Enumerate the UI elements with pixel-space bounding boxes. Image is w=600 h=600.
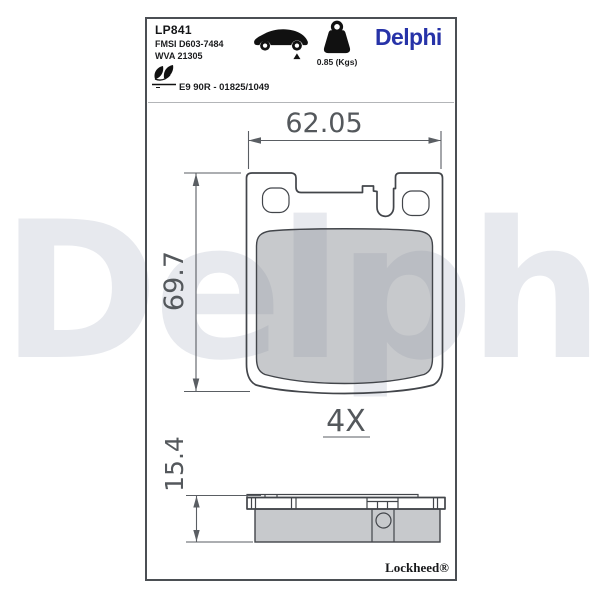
side-view-friction-material [255,509,440,542]
brake-pad-datasheet: Delphi LP841 FMSI D603-7484 WVA 21305 0.… [0,0,600,600]
front-view-right-hole [403,191,430,216]
front-view-left-hole [263,188,290,213]
side-view-shim [247,495,418,498]
width-dimension: 62.05 [249,108,442,169]
quantity-note: 4X [323,404,370,439]
thickness-dimension: 15.4 [160,436,261,542]
technical-drawing: 62.05 69.7 4X [0,0,600,600]
quantity-value: 4X [326,404,366,439]
height-dimension-value: 69.7 [159,251,190,311]
width-dimension-value: 62.05 [285,108,362,139]
thickness-dimension-value: 15.4 [160,436,189,492]
side-view-backplate [247,498,445,510]
height-dimension: 69.7 [159,173,250,392]
front-view-friction-material [257,229,433,384]
side-view [247,495,445,543]
